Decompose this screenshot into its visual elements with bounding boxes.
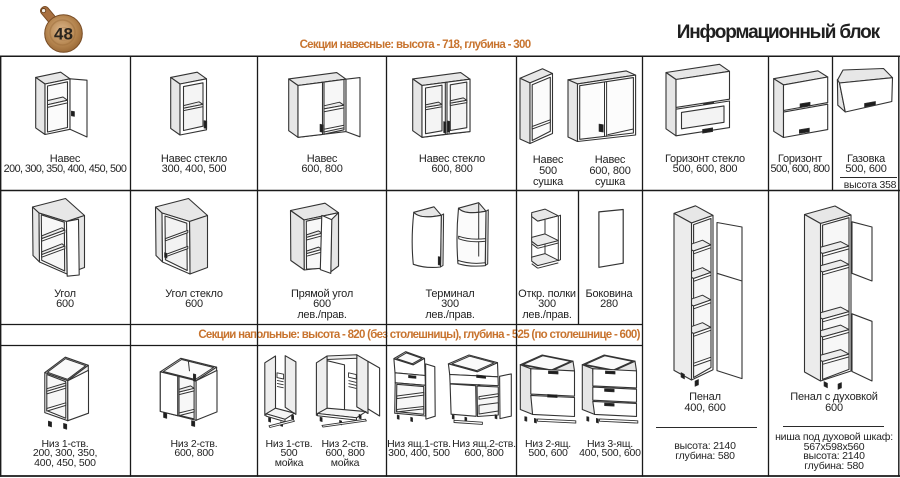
svg-text:48: 48: [54, 25, 73, 44]
